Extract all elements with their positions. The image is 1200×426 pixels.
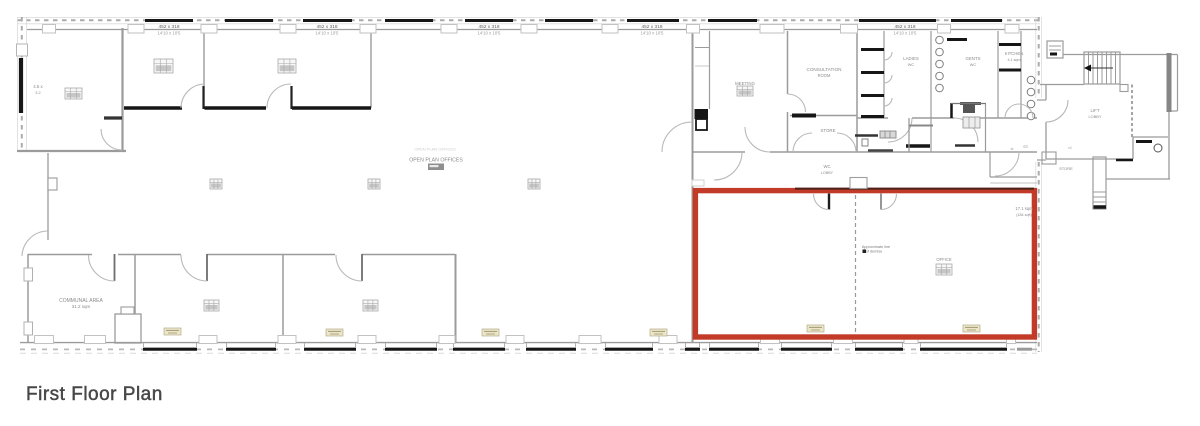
svg-text:14'10 x 10'5: 14'10 x 10'5 <box>316 31 340 36</box>
svg-text:KITCHEN: KITCHEN <box>1005 51 1023 56</box>
svg-text:3.2: 3.2 <box>35 90 40 95</box>
svg-text:of demise: of demise <box>866 250 882 254</box>
svg-text:ROOM: ROOM <box>818 73 831 78</box>
svg-text:452 x 318: 452 x 318 <box>316 24 337 30</box>
svg-text:WC: WC <box>908 62 915 67</box>
svg-text:4.5 x: 4.5 x <box>33 84 43 89</box>
svg-text:STORE: STORE <box>820 128 835 133</box>
svg-text:WC: WC <box>824 164 831 169</box>
svg-text:17.1 sqm: 17.1 sqm <box>1015 206 1033 211</box>
svg-text:Approximate line: Approximate line <box>862 245 890 249</box>
svg-text:452 x 318: 452 x 318 <box>894 24 915 30</box>
svg-text:OFFICE: OFFICE <box>936 257 952 262</box>
svg-text:st: st <box>1011 147 1015 151</box>
svg-text:First Floor Plan: First Floor Plan <box>26 384 163 405</box>
svg-text:14'10 x 10'5: 14'10 x 10'5 <box>641 31 665 36</box>
svg-text:LOBBY: LOBBY <box>821 171 834 175</box>
svg-text:x1: x1 <box>1068 146 1072 150</box>
svg-text:STORE: STORE <box>1059 166 1073 171</box>
svg-text:4.1 sqm: 4.1 sqm <box>1007 58 1020 62</box>
svg-text:MEETING: MEETING <box>735 81 756 86</box>
svg-text:WC: WC <box>970 62 977 67</box>
svg-text:LOBBY: LOBBY <box>1089 114 1102 119</box>
svg-text:CONSULTATION: CONSULTATION <box>807 67 842 72</box>
svg-text:14'10 x 10'5: 14'10 x 10'5 <box>894 31 918 36</box>
svg-text:LADIES: LADIES <box>903 56 919 61</box>
svg-text:14'10 x 10'5: 14'10 x 10'5 <box>158 31 182 36</box>
svg-text:ST.: ST. <box>1023 144 1029 149</box>
svg-text:OPEN PLAN OFFICES: OPEN PLAN OFFICES <box>409 158 463 164</box>
svg-text:452 x 318: 452 x 318 <box>158 24 179 30</box>
svg-text:LIFT: LIFT <box>1090 108 1099 113</box>
svg-text:14'10 x 10'5: 14'10 x 10'5 <box>478 31 502 36</box>
svg-text:OPEN PLAN OFFICES: OPEN PLAN OFFICES <box>414 147 456 152</box>
svg-text:(184 sqft): (184 sqft) <box>1016 213 1032 217</box>
svg-text:452 x 318: 452 x 318 <box>478 24 499 30</box>
svg-text:GENTS: GENTS <box>965 56 980 61</box>
svg-text:31.2 sqm: 31.2 sqm <box>72 304 91 309</box>
svg-text:452 x 318: 452 x 318 <box>641 24 662 30</box>
